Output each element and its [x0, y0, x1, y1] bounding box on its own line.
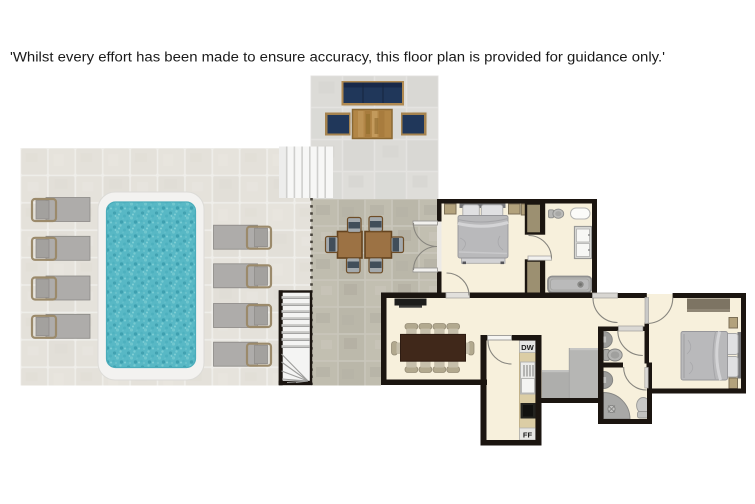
svg-text:DW: DW	[521, 343, 534, 352]
svg-text:FF: FF	[523, 430, 533, 439]
svg-text:'Whilst every effort has been: 'Whilst every effort has been made to en…	[10, 50, 665, 65]
